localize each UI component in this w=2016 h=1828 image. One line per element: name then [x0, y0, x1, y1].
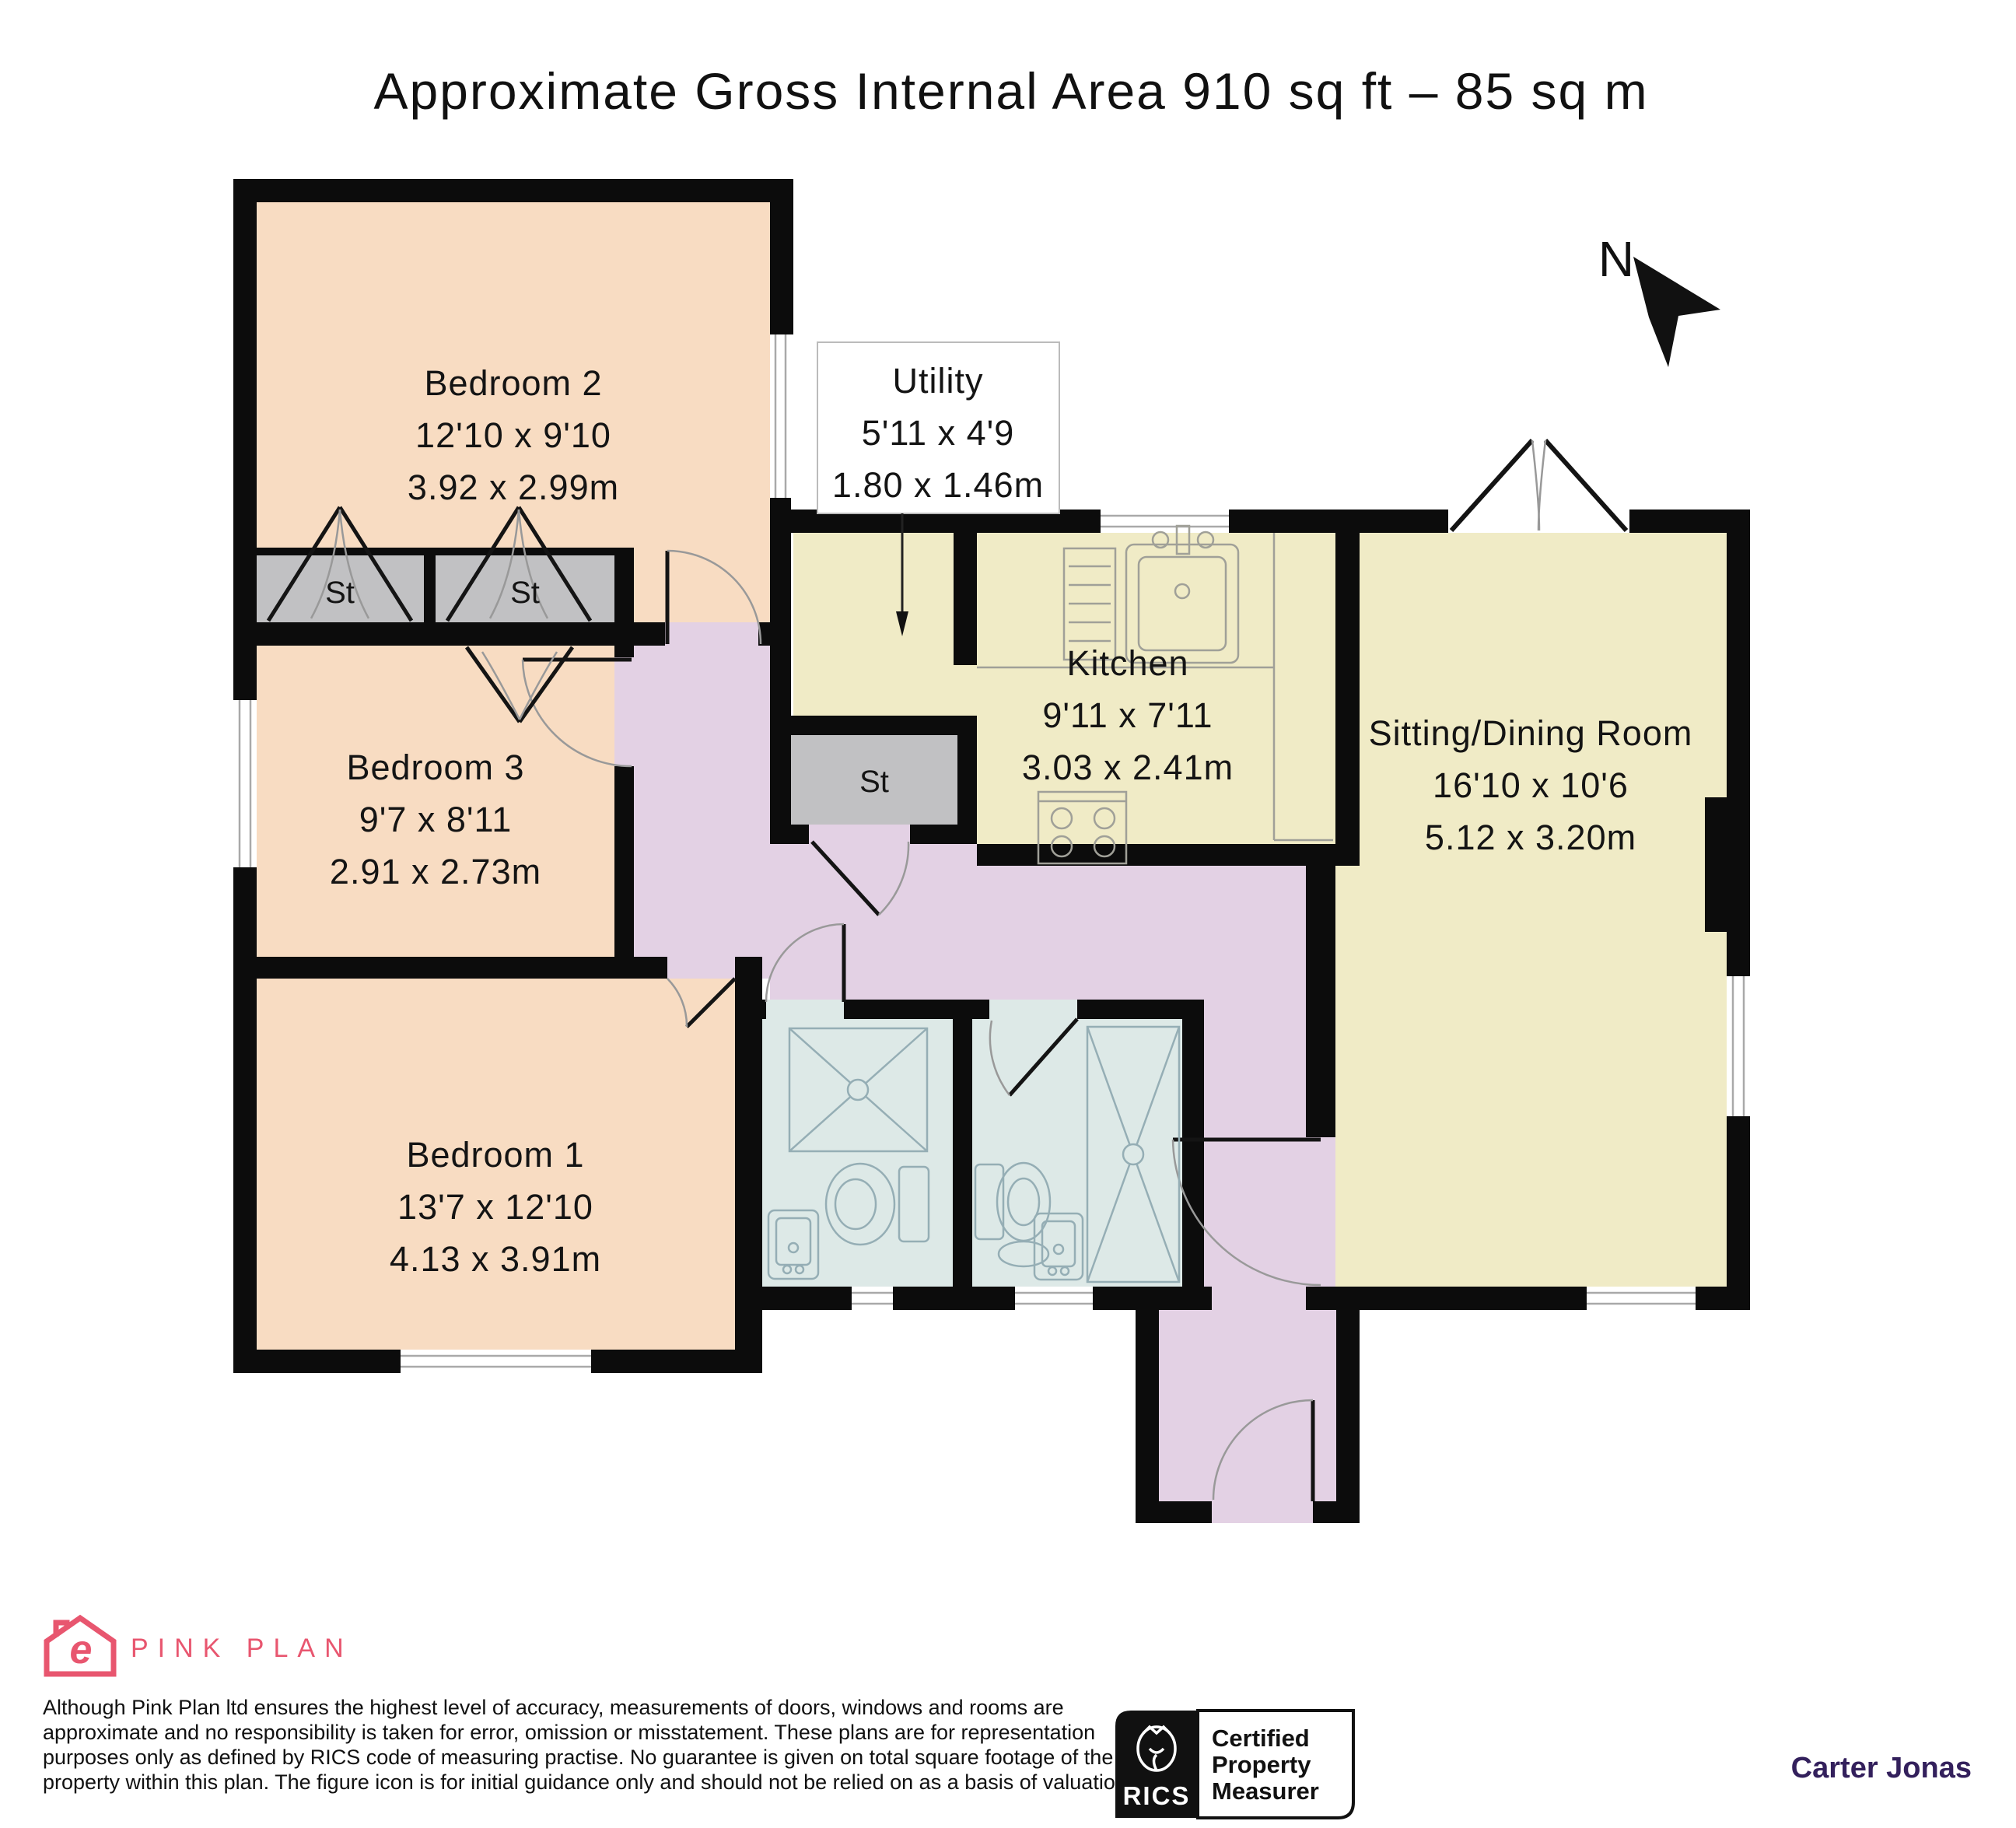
- bedroom1-window: [401, 1350, 591, 1373]
- bathroom-left-floor: [762, 1019, 953, 1287]
- bedroom3-imperial: 9'7 x 8'11: [359, 800, 512, 839]
- storage1-label: St: [325, 576, 355, 610]
- pinkplan-logo: e PINK PLAN: [47, 1618, 353, 1674]
- north-arrow: N: [1598, 231, 1720, 367]
- kitchen-name: Kitchen: [1066, 643, 1188, 683]
- bedroom3-name: Bedroom 3: [346, 748, 524, 787]
- bedroom2-metric: 3.92 x 2.99m: [408, 468, 619, 507]
- kitchen-imperial: 9'11 x 7'11: [1042, 695, 1213, 735]
- sitting-right-window: [1727, 976, 1750, 1116]
- chimney-breast: [1705, 797, 1727, 932]
- bedroom3-metric: 2.91 x 2.73m: [330, 852, 541, 891]
- sitting-bottom-window: [1587, 1287, 1696, 1310]
- rics-name: RICS: [1123, 1781, 1191, 1810]
- utility-metric: 1.80 x 1.46m: [832, 465, 1044, 505]
- sitting-imperial: 16'10 x 10'6: [1433, 765, 1629, 805]
- floorplan-drawing: Approximate Gross Internal Area 910 sq f…: [0, 0, 2016, 1828]
- bathroom-left-doorway: [766, 1000, 844, 1019]
- sitting-room-floor: [1335, 533, 1727, 1287]
- storage2-label: St: [510, 576, 540, 610]
- disclaimer-line-1: Although Pink Plan ltd ensures the highe…: [43, 1696, 1064, 1719]
- sitting-name: Sitting/Dining Room: [1369, 713, 1693, 753]
- bedroom2-window: [770, 334, 791, 498]
- utility-imperial: 5'11 x 4'9: [862, 413, 1014, 453]
- kitchen-window: [1101, 510, 1229, 533]
- bedroom3-window: [233, 700, 257, 867]
- rics-line-1: Certified: [1212, 1725, 1310, 1752]
- bedroom1-imperial: 13'7 x 12'10: [397, 1187, 593, 1227]
- north-arrow-icon: [1633, 257, 1720, 367]
- rics-line-3: Measurer: [1212, 1777, 1319, 1805]
- kitchen-metric: 3.03 x 2.41m: [1022, 748, 1234, 787]
- french-doors: [1448, 440, 1629, 533]
- storage3-label: St: [859, 765, 889, 799]
- brand-logo: Carter Jonas: [1791, 1752, 1972, 1784]
- bathroom-right-window: [1015, 1287, 1093, 1310]
- sitting-metric: 5.12 x 3.20m: [1425, 818, 1636, 857]
- north-label: N: [1598, 231, 1634, 287]
- disclaimer-line-3: purposes only as defined by RICS code of…: [43, 1746, 1113, 1769]
- page-title: Approximate Gross Internal Area 910 sq f…: [373, 62, 1648, 120]
- pinkplan-glyph: e: [70, 1627, 93, 1672]
- utility-name: Utility: [893, 361, 984, 401]
- bedroom1-name: Bedroom 1: [406, 1135, 584, 1175]
- disclaimer-line-2: approximate and no responsibility is tak…: [43, 1721, 1095, 1744]
- disclaimer: Although Pink Plan ltd ensures the highe…: [43, 1696, 1132, 1794]
- pinkplan-wordmark: PINK PLAN: [131, 1634, 353, 1663]
- floorplan-page: Approximate Gross Internal Area 910 sq f…: [0, 0, 2016, 1828]
- rics-badge: RICS Certified Property Measurer: [1115, 1711, 1353, 1818]
- bedroom1-metric: 4.13 x 3.91m: [390, 1239, 601, 1279]
- bedroom2-imperial: 12'10 x 9'10: [415, 415, 611, 455]
- bathroom-right-doorway: [989, 1000, 1077, 1019]
- disclaimer-line-4: property within this plan. The figure ic…: [43, 1770, 1132, 1794]
- rics-line-2: Property: [1212, 1751, 1311, 1778]
- bathroom-left-window: [852, 1287, 893, 1310]
- bedroom2-name: Bedroom 2: [424, 363, 602, 403]
